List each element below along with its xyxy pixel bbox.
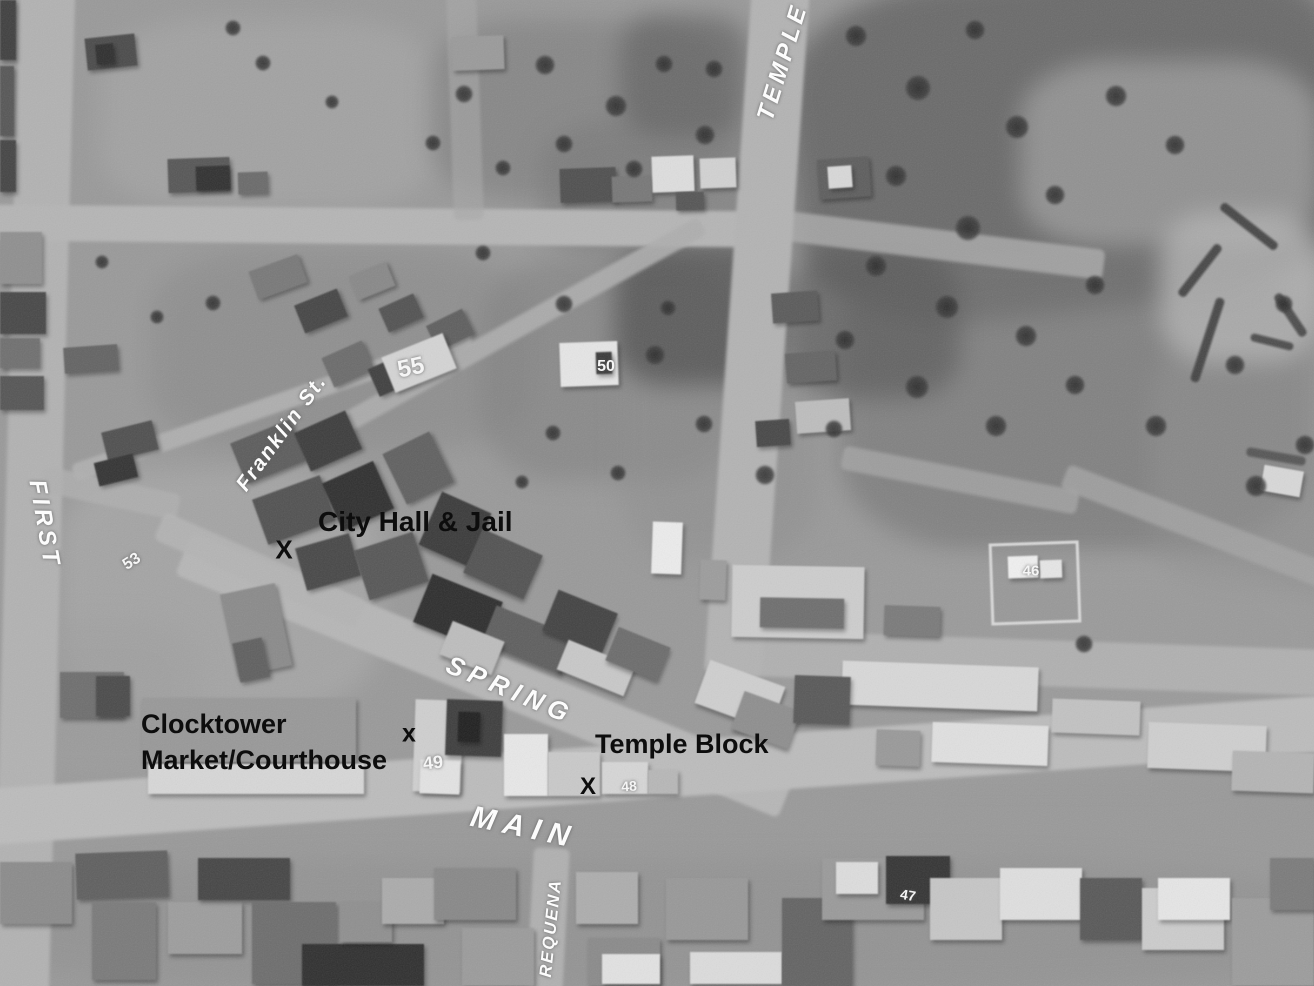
place-label-temple-block: Temple Block bbox=[595, 726, 769, 762]
street-label-requena: REQUENA bbox=[536, 878, 566, 979]
place-label-line: City Hall & Jail bbox=[318, 503, 513, 541]
marker-temple-block-x: X bbox=[580, 773, 596, 801]
place-label-line: Temple Block bbox=[595, 726, 769, 762]
street-label-temple: TEMPLE bbox=[752, 0, 814, 124]
parcel-number-50: 50 bbox=[597, 358, 615, 376]
place-label-line: Clocktower bbox=[141, 706, 387, 742]
street-label-main: MAIN bbox=[467, 800, 580, 856]
marker-city-hall-jail-x: X bbox=[275, 535, 292, 566]
marker-clocktower-x: x bbox=[402, 720, 416, 749]
street-label-franklin: Franklin St. bbox=[232, 370, 333, 496]
parcel-number-46: 46 bbox=[1023, 563, 1040, 580]
parcel-number-48: 48 bbox=[621, 777, 638, 794]
street-label-spring: SPRING bbox=[441, 649, 578, 731]
map-annotation-layer: TEMPLEFIRSTFranklin St.SPRINGMAINREQUENA… bbox=[0, 0, 1314, 986]
parcel-number-55: 55 bbox=[395, 352, 427, 385]
parcel-number-49: 49 bbox=[422, 752, 444, 775]
parcel-number-47: 47 bbox=[899, 886, 917, 904]
place-label-clocktower-market-courthouse: ClocktowerMarket/Courthouse bbox=[141, 706, 387, 779]
annotated-aerial-map: TEMPLEFIRSTFranklin St.SPRINGMAINREQUENA… bbox=[0, 0, 1314, 986]
street-label-first: FIRST bbox=[22, 478, 65, 571]
place-label-line: Market/Courthouse bbox=[141, 742, 387, 778]
parcel-number-53: 53 bbox=[120, 550, 145, 575]
place-label-city-hall-jail: City Hall & Jail bbox=[318, 503, 513, 541]
